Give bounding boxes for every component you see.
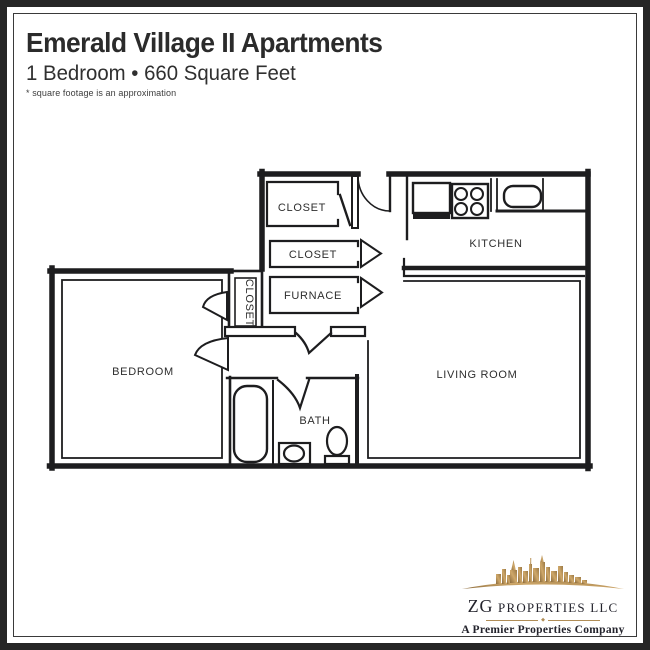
city-skyline-icon (458, 547, 628, 593)
bathtub-icon (234, 386, 267, 462)
room-labels: CLOSET CLOSET FURNACE KITCHEN CLOSET BED… (112, 202, 522, 427)
bath-area (227, 376, 358, 466)
refrigerator-icon (413, 183, 450, 213)
divider-line-left (486, 620, 538, 621)
hall-wall-right (331, 327, 365, 336)
company-name: ZG PROPERTIES LLC (458, 596, 628, 617)
label-bath: BATH (299, 415, 330, 427)
label-bedroom: BEDROOM (112, 366, 174, 378)
diamond-icon: ◆ (541, 618, 545, 623)
company-name-rest: PROPERTIES LLC (498, 600, 618, 615)
hall-wall-left (225, 327, 295, 336)
toilet-tank-icon (325, 456, 349, 464)
bath-sink-icon (284, 446, 304, 462)
label-living-room: LIVING ROOM (436, 369, 517, 381)
refrigerator-base-icon (413, 212, 450, 219)
logo-divider: ◆ (486, 618, 600, 623)
skyline-base-swoosh (462, 581, 624, 589)
closet-top-door-leaf-icon (340, 195, 350, 225)
furnace-door-icon (361, 278, 382, 307)
company-logo: ZG PROPERTIES LLC ◆ A Premier Properties… (458, 547, 628, 636)
toilet-bowl-icon (327, 427, 347, 455)
counter-divider (491, 179, 497, 211)
divider-line-right (548, 620, 600, 621)
bedroom-closet-door-icon (203, 292, 227, 320)
skyline-buildings (496, 555, 587, 584)
entry-hall-wall (352, 176, 358, 228)
hall-door-icon (296, 333, 331, 353)
label-kitchen: KITCHEN (469, 238, 522, 250)
bedroom-door-icon (195, 338, 228, 370)
closet-middle-door-icon (361, 240, 381, 267)
bath-door-icon (278, 380, 309, 408)
label-bedroom-closet: CLOSET (243, 279, 255, 327)
label-furnace: FURNACE (284, 290, 342, 302)
kitchen-sink-icon (504, 186, 541, 207)
label-closet-top: CLOSET (278, 202, 326, 214)
company-name-zg: ZG (468, 596, 494, 616)
label-closet-middle: CLOSET (289, 249, 337, 261)
company-tagline: A Premier Properties Company (458, 624, 628, 636)
entry-door-arc-icon (358, 176, 390, 211)
stove-burners-icon (455, 188, 483, 215)
kitchen-area (404, 176, 585, 276)
